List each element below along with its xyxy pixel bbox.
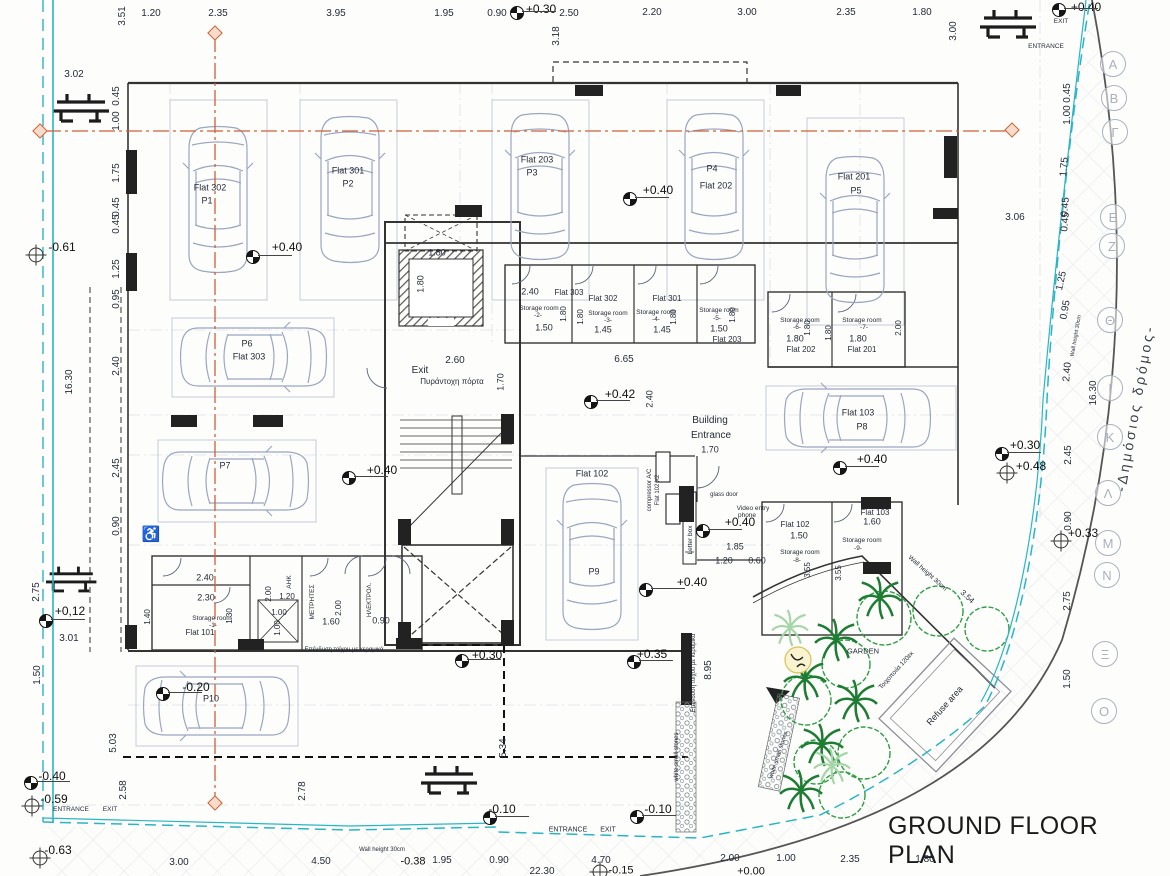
dim-label: 0.45 — [1063, 83, 1073, 102]
dim-label: 1.45 — [594, 326, 612, 335]
tree-canopy — [965, 607, 1009, 651]
dim-label: 3.55 — [835, 565, 843, 581]
dim-label: 2.00 — [895, 320, 903, 336]
parking-id-label: P3 — [526, 169, 537, 178]
dim-label: 1.80 — [670, 309, 678, 325]
floor-plan-drawing — [0, 0, 1170, 876]
dim-label: 1.00 — [271, 609, 287, 617]
dim-label: 1.80 — [912, 8, 931, 18]
benchmark-marker — [995, 447, 1009, 461]
parking-id-label: P1 — [201, 197, 212, 206]
dim-label: 1.20 — [141, 9, 160, 19]
dim-label: 2.35 — [208, 9, 227, 19]
dim-label: 1.80 — [577, 309, 585, 325]
dim-label: 2.35 — [836, 8, 855, 18]
wheelchair-accessible-icon: ♿ — [142, 525, 161, 543]
storage-flat-label: Flat 102 — [781, 521, 810, 529]
dim-label: 2.00 — [335, 600, 343, 616]
parking-flat-label: Flat 303 — [233, 353, 266, 362]
storage-flat-label: Flat 201 — [848, 346, 877, 354]
benchmark-marker — [25, 799, 40, 814]
parking-flat-label: Flat 302 — [194, 184, 227, 193]
storage-room-label: Storage room — [780, 550, 819, 557]
grid-bubble-Λ: Λ — [1095, 480, 1121, 506]
building-entrance-label: Entrance — [691, 431, 731, 441]
dim-label: 2.20 — [642, 8, 661, 18]
grid-bubble-K: K — [1097, 424, 1123, 450]
dim-label: -6- — [793, 325, 801, 332]
stall-P1 — [170, 100, 267, 300]
dim-label: 1.70 — [497, 373, 506, 391]
dim-label: 5.03 — [109, 733, 119, 752]
benchmark-marker — [584, 395, 598, 409]
benchmark-marker — [156, 687, 170, 701]
dim-label: 3.06 — [1005, 213, 1024, 223]
dim-label: 1.95 — [434, 9, 453, 19]
garden-emblem — [785, 647, 811, 673]
benchmark-marker — [24, 776, 38, 790]
level-annotation: -0.15 — [608, 866, 633, 876]
dim-label: 1.75 — [112, 163, 122, 182]
benchmark-marker — [623, 192, 637, 206]
stall-P5 — [807, 118, 904, 325]
dim-label: -3- — [604, 318, 612, 325]
parking-flat-label: Flat 102 — [576, 470, 609, 479]
grid-bubble-M: M — [1095, 530, 1121, 556]
grid-bubble-B: B — [1101, 85, 1127, 111]
dim-label: ENTRANCE — [549, 827, 588, 834]
benchmark-marker — [455, 654, 469, 668]
dim-label: 0.90 — [112, 516, 122, 535]
dim-label: 1.80 — [915, 855, 934, 865]
dim-label: 2.75 — [1063, 591, 1073, 610]
stall-P4 — [667, 100, 764, 300]
stall-P10 — [136, 666, 298, 746]
dim-label: 2.35 — [840, 855, 859, 865]
storage-flat-label: Flat 301 — [653, 295, 682, 303]
dim-label: 5.34 — [499, 738, 509, 757]
level-annotation: +0.42 — [605, 388, 635, 400]
grid-bubble-A: A — [1100, 51, 1126, 77]
dim-label: 1.85 — [726, 543, 744, 552]
dim-label: 1.00 — [112, 111, 122, 130]
dim-label: 0.45 — [112, 86, 122, 105]
level-annotation: +0.40 — [1071, 1, 1101, 13]
parking-flat-label: Flat 301 — [332, 167, 365, 176]
palm-plant — [835, 680, 877, 722]
benchmark-marker — [1054, 534, 1069, 549]
dim-label: 1.50 — [790, 532, 808, 541]
dim-label: 2.45 — [1064, 445, 1074, 464]
benchmark-marker — [29, 248, 44, 263]
dim-label: EXIT — [600, 827, 616, 834]
dim-label: 2.40 — [521, 288, 539, 297]
benchmark-marker — [1052, 3, 1066, 17]
dim-label: 1.00 — [1063, 105, 1073, 124]
letter-box-label: Letter box — [688, 526, 695, 555]
dim-label: 3.55 — [804, 562, 812, 578]
storage-room-label: Storage room — [842, 538, 881, 545]
palm-plant — [772, 610, 808, 646]
dim-label: EXIT — [1054, 19, 1068, 26]
dim-label: -9- — [854, 546, 862, 553]
dim-label: 8.95 — [704, 660, 714, 679]
dim-label: 2.78 — [298, 781, 308, 800]
level-annotation: +0.30 — [1010, 439, 1040, 451]
dim-label: 2.30 — [197, 594, 215, 603]
parking-flat-label: Flat 201 — [838, 173, 871, 182]
dim-label: 2.00 — [265, 586, 273, 602]
car-P9 — [557, 484, 627, 630]
level-annotation: -0.63 — [44, 844, 71, 856]
benchmark-marker — [639, 583, 653, 597]
dim-label: 2.40 — [196, 574, 214, 583]
dim-label: 22.30 — [529, 867, 554, 876]
parking-id-label: P9 — [588, 568, 599, 577]
exit-label: Exit — [412, 366, 429, 376]
dim-label: 16.30 — [65, 369, 75, 394]
ac-compressor-label: Flat 102 X2 — [655, 475, 661, 506]
ahk-label: ΑΗΚ — [287, 575, 294, 588]
palm-plant — [814, 748, 850, 784]
level-annotation: +0.33 — [1068, 527, 1098, 539]
benchmark-marker — [627, 655, 641, 669]
dim-label: 1.80 — [825, 325, 833, 341]
dim-label: 1.50 — [535, 324, 553, 333]
dim-label: 3.02 — [64, 70, 83, 80]
dim-label: 1.40 — [144, 609, 152, 625]
dim-label: ENTRANCE — [1028, 44, 1064, 51]
dim-label: 1.60 — [863, 518, 881, 527]
dim-label: Wall height 30cm — [359, 847, 405, 853]
grid-bubble-Θ: Θ — [1097, 307, 1123, 333]
benchmark-marker — [593, 865, 608, 876]
dim-label: 1.80 — [729, 307, 737, 323]
dim-label: 0.90 — [489, 856, 508, 866]
dim-label: -4- — [652, 317, 660, 324]
dim-label: 1.50 — [33, 665, 43, 684]
level-annotation: +0.00 — [737, 867, 765, 876]
dim-label: 3.00 — [169, 858, 188, 868]
dim-label: 0.45 — [1060, 212, 1072, 232]
dim-label: 1.80 — [417, 275, 426, 293]
dim-label: 2.58 — [119, 780, 129, 799]
benchmark-marker — [1000, 466, 1015, 481]
level-annotation: -0.61 — [48, 241, 75, 253]
dim-label: 1.80 — [786, 335, 804, 344]
car-P1 — [183, 127, 253, 273]
level-annotation: +0.40 — [272, 241, 302, 253]
dim-label: 2.75 — [32, 582, 42, 601]
dim-label: -8- — [793, 558, 801, 565]
dim-label: 1.80 — [804, 320, 812, 336]
level-annotation: +0.40 — [857, 453, 887, 465]
dim-label: 1.80 — [428, 249, 446, 258]
parking-flat-label: Flat 203 — [521, 156, 554, 165]
dim-label: 1.80 — [560, 306, 568, 322]
parking-flat-label: Flat 103 — [842, 409, 875, 418]
video-entry-phone-label: phone — [738, 513, 756, 520]
dim-label: 1.25 — [112, 259, 122, 278]
benchmark-marker — [246, 250, 260, 264]
dim-label: 2.40 — [112, 356, 122, 375]
parking-id-label: P2 — [342, 180, 353, 189]
dim-label: 1.70 — [701, 446, 719, 455]
glass-door-label: glass door — [710, 492, 738, 498]
dim-label: Επένδυση τοίχου με κεραμικά — [691, 634, 697, 713]
level-annotation: +0.40 — [367, 464, 397, 476]
dim-label: 2.00 — [720, 854, 739, 864]
stall-P3 — [492, 100, 589, 300]
car-P2 — [315, 117, 385, 263]
grid-bubble-N: N — [1094, 562, 1120, 588]
dim-label: -2- — [534, 313, 542, 320]
dim-label: 1.20 — [715, 557, 733, 566]
grid-bubble-Γ: Γ — [1102, 119, 1128, 145]
dim-label: 4.50 — [311, 857, 330, 867]
electrical-room-label: ΗΛΕΚΤΡΟΛ. — [367, 583, 373, 617]
grid-bubble-O: O — [1091, 698, 1117, 724]
palm-plant — [859, 577, 901, 619]
car-P3 — [505, 114, 575, 260]
dim-label: 1.45 — [653, 326, 671, 335]
dim-label: 1.80 — [849, 335, 867, 344]
parking-id-label: P7 — [219, 462, 230, 471]
stall-P2 — [300, 100, 397, 300]
dim-label: 3.01 — [59, 634, 78, 644]
dim-label: -5- — [713, 316, 721, 323]
benchmark-marker — [342, 471, 356, 485]
dim-label: 1.75 — [1059, 157, 1071, 177]
dim-label: -7- — [860, 325, 868, 332]
benchmark-marker — [510, 6, 524, 20]
stone-strips — [676, 694, 800, 832]
dim-label: 1.95 — [432, 856, 451, 866]
benchmark-marker — [33, 851, 48, 866]
dim-label: 1.00 — [274, 620, 282, 636]
parking-id-label: P5 — [850, 187, 861, 196]
benchmark-marker — [630, 810, 644, 824]
level-annotation: +0,12 — [55, 605, 85, 617]
parking-flat-label: Flat 202 — [700, 182, 733, 191]
car-P10 — [144, 671, 290, 741]
level-annotation: +0.30 — [526, 3, 556, 15]
dim-label: 1.20 — [279, 593, 295, 601]
parking-id-label: P4 — [706, 165, 717, 174]
dim-label: 6.65 — [614, 355, 633, 365]
meters-label: ΜΕΤΡΗΤΕΣ — [310, 584, 317, 619]
benchmark-marker — [696, 524, 710, 538]
tree-canopy — [913, 586, 963, 636]
dim-label: 2.50 — [559, 9, 578, 19]
storage-flat-label: Flat 202 — [787, 346, 816, 354]
level-annotation: -0.10 — [644, 803, 671, 815]
level-annotation: -0.59 — [40, 793, 67, 805]
grid-bubble-Z: Z — [1099, 233, 1125, 259]
level-annotation: -0.38 — [400, 857, 425, 868]
building-entrance-label: Building — [692, 416, 728, 426]
dim-label: 1.50 — [710, 325, 728, 334]
dim-label: 0.90 — [487, 9, 506, 19]
dim-label: 2.60 — [445, 356, 464, 366]
dim-label: 3.00 — [737, 8, 756, 18]
grid-bubble-Ξ: Ξ — [1092, 641, 1118, 667]
storage-flat-label: Flat 203 — [713, 336, 742, 344]
tree-canopy — [857, 591, 911, 645]
fire-door-label: Πυράντοχη πόρτα — [420, 378, 484, 386]
benchmark-marker — [833, 461, 847, 475]
level-annotation: +0.40 — [677, 576, 707, 588]
garden-label: GARDEN — [847, 647, 879, 655]
car-P7 — [163, 446, 309, 516]
storage-flat-label: Flat 101 — [186, 629, 215, 637]
level-annotation: +0.40 — [643, 184, 673, 196]
dim-label: 1.00 — [776, 854, 795, 864]
dim-label: 2.40 — [646, 390, 655, 408]
level-annotation: +0.35 — [637, 648, 667, 660]
parking-id-label: P8 — [856, 423, 867, 432]
grid-bubble-I: I — [1097, 375, 1123, 401]
parking-id-label: P6 — [241, 340, 252, 349]
floor-plan-page: GROUND FLOOR PLAN ♿ const data = JSON.pa… — [0, 0, 1170, 876]
car-P8 — [785, 383, 931, 453]
dim-label: ENTRANCE — [53, 807, 89, 814]
ac-compressor-label: compressor A/C — [647, 469, 653, 512]
parking-id-label: P10 — [203, 695, 219, 704]
dim-label: 1.50 — [1063, 669, 1073, 688]
dim-label: EXIT — [103, 807, 117, 814]
dim-label: 2.40 — [1062, 362, 1074, 382]
dim-label: 3.18 — [552, 26, 562, 45]
dim-label: 3.51 — [118, 6, 128, 25]
storage-flat-label: Flat 302 — [589, 295, 618, 303]
dim-label: 0.90 — [372, 617, 390, 626]
dim-label: 0.95 — [112, 289, 122, 308]
dim-label: 2.45 — [112, 458, 122, 477]
level-annotation: +0.48 — [1016, 460, 1046, 472]
dim-label: white small stones — [674, 732, 680, 781]
dim-label: 3.00 — [949, 21, 959, 40]
dim-label: 3.95 — [326, 9, 345, 19]
dim-label: 1.60 — [322, 618, 340, 627]
dim-label: 0.60 — [748, 557, 766, 566]
dim-label: Επένδυση τοίχου με κεραμικά — [305, 647, 384, 653]
grid-bubble-E: E — [1100, 204, 1126, 230]
benchmark-marker — [39, 614, 53, 628]
benchmark-marker — [483, 811, 497, 825]
dim-label: 0.45 — [112, 214, 122, 233]
palm-plant — [780, 770, 822, 812]
stall-P9 — [546, 468, 638, 640]
storage-flat-label: Flat 303 — [555, 289, 584, 297]
